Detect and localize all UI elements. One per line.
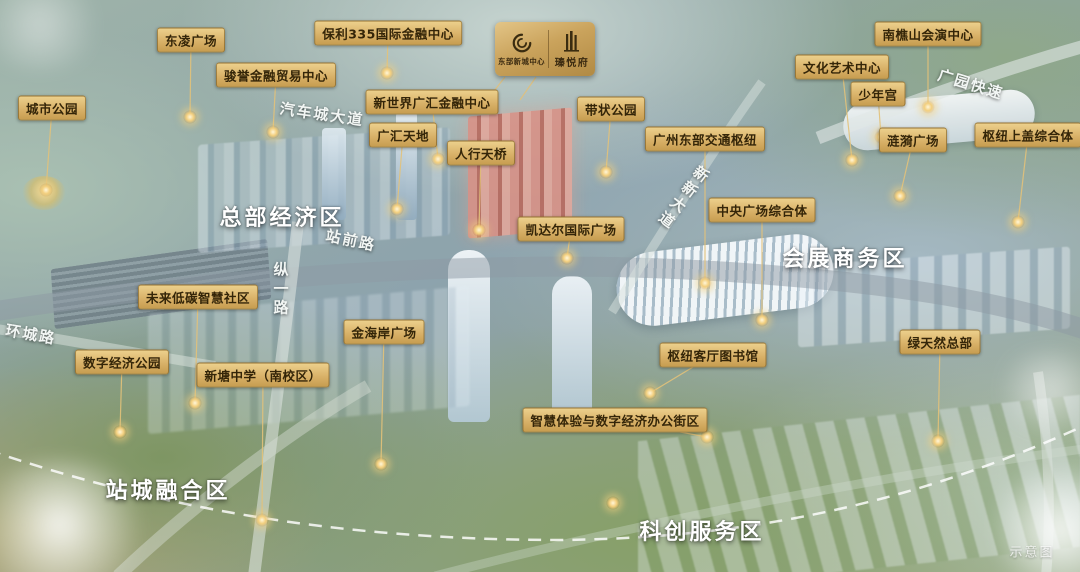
- landmark-label: 涟漪广场: [879, 128, 947, 153]
- landmark-marker-dot: [1012, 216, 1025, 229]
- zone-label: 会展商务区: [782, 241, 907, 273]
- marker-dot: [607, 497, 620, 510]
- landmark-label: 带状公园: [577, 97, 645, 122]
- landmark-marker-dot: [114, 426, 127, 439]
- road-label: 环城路: [4, 319, 58, 349]
- watermark: 示意图: [1009, 542, 1054, 561]
- landmark-label: 广汇天地: [369, 123, 437, 148]
- badge-right-half: 瑧悦府: [549, 22, 595, 76]
- badge-right-name: 瑧悦府: [555, 54, 590, 69]
- landmark-marker-dot: [561, 252, 574, 265]
- road-label: 汽车城大道: [278, 98, 365, 131]
- landmark-label: 绿天然总部: [899, 330, 980, 355]
- landmark-marker-dot: [381, 67, 394, 80]
- annotation-layer: 城市公园东凌广场骏誉金融贸易中心保利335国际金融中心新世界广汇金融中心广汇天地…: [0, 0, 1080, 572]
- landmark-marker-dot: [256, 514, 269, 527]
- landmark-marker-dot: [846, 154, 859, 167]
- landmark-label: 广州东部交通枢纽: [645, 127, 765, 152]
- zone-label: 站城融合区: [105, 473, 230, 505]
- landmark-marker-dot: [189, 397, 202, 410]
- road-label: 新新大道: [652, 161, 715, 234]
- landmark-label: 未来低碳智慧社区: [138, 285, 258, 310]
- landmark-marker-dot: [267, 126, 280, 139]
- road-label: 纵一路: [271, 262, 292, 319]
- landmark-label: 保利335国际金融中心: [314, 21, 462, 46]
- zone-label: 总部经济区: [219, 200, 344, 232]
- landmark-label: 新世界广汇金融中心: [365, 90, 498, 115]
- landmark-marker-dot: [922, 101, 935, 114]
- project-logo-badge: 东部新城中心 瑧悦府: [495, 22, 595, 76]
- swirl-logo-icon: [511, 32, 533, 54]
- masterplan-canvas: 城市公园东凌广场骏誉金融贸易中心保利335国际金融中心新世界广汇金融中心广汇天地…: [0, 0, 1080, 572]
- landmark-marker-dot: [894, 190, 907, 203]
- landmark-marker-dot: [375, 458, 388, 471]
- landmark-label: 枢纽上盖综合体: [974, 123, 1080, 148]
- badge-left-half: 东部新城中心: [495, 22, 548, 76]
- landmark-label: 枢纽客厅图书馆: [659, 343, 766, 368]
- landmark-marker-dot: [644, 387, 657, 400]
- landmark-marker-dot: [699, 277, 712, 290]
- landmark-label: 数字经济公园: [75, 350, 169, 375]
- landmark-label: 少年宫: [850, 82, 905, 107]
- landmark-marker-dot: [756, 314, 769, 327]
- landmark-label: 城市公园: [18, 96, 86, 121]
- landmark-label: 骏誉金融贸易中心: [216, 63, 336, 88]
- landmark-marker-dot: [391, 203, 404, 216]
- landmark-label: 中央广场综合体: [708, 198, 815, 223]
- landmark-label: 智慧体验与数字经济办公街区: [522, 408, 707, 433]
- landmark-label: 凯达尔国际广场: [517, 217, 624, 242]
- landmark-marker-dot: [473, 224, 486, 237]
- landmark-marker-dot: [432, 153, 445, 166]
- landmark-marker-dot: [932, 435, 945, 448]
- landmark-label: 文化艺术中心: [795, 55, 889, 80]
- landmark-label: 人行天桥: [447, 141, 515, 166]
- badge-left-name: 东部新城中心: [498, 56, 545, 66]
- landmark-label: 南樵山会演中心: [874, 22, 981, 47]
- landmark-marker-dot: [184, 111, 197, 124]
- landmark-marker-dot: [40, 184, 53, 197]
- road-label: 站前路: [324, 224, 378, 255]
- landmark-label: 金海岸广场: [343, 320, 424, 345]
- landmark-marker-dot: [600, 166, 613, 179]
- building-logo-icon: [562, 30, 582, 52]
- zone-label: 科创服务区: [639, 514, 764, 546]
- road-label: 广园快速: [935, 64, 1006, 104]
- landmark-label: 新塘中学（南校区）: [196, 363, 329, 388]
- landmark-label: 东凌广场: [157, 28, 225, 53]
